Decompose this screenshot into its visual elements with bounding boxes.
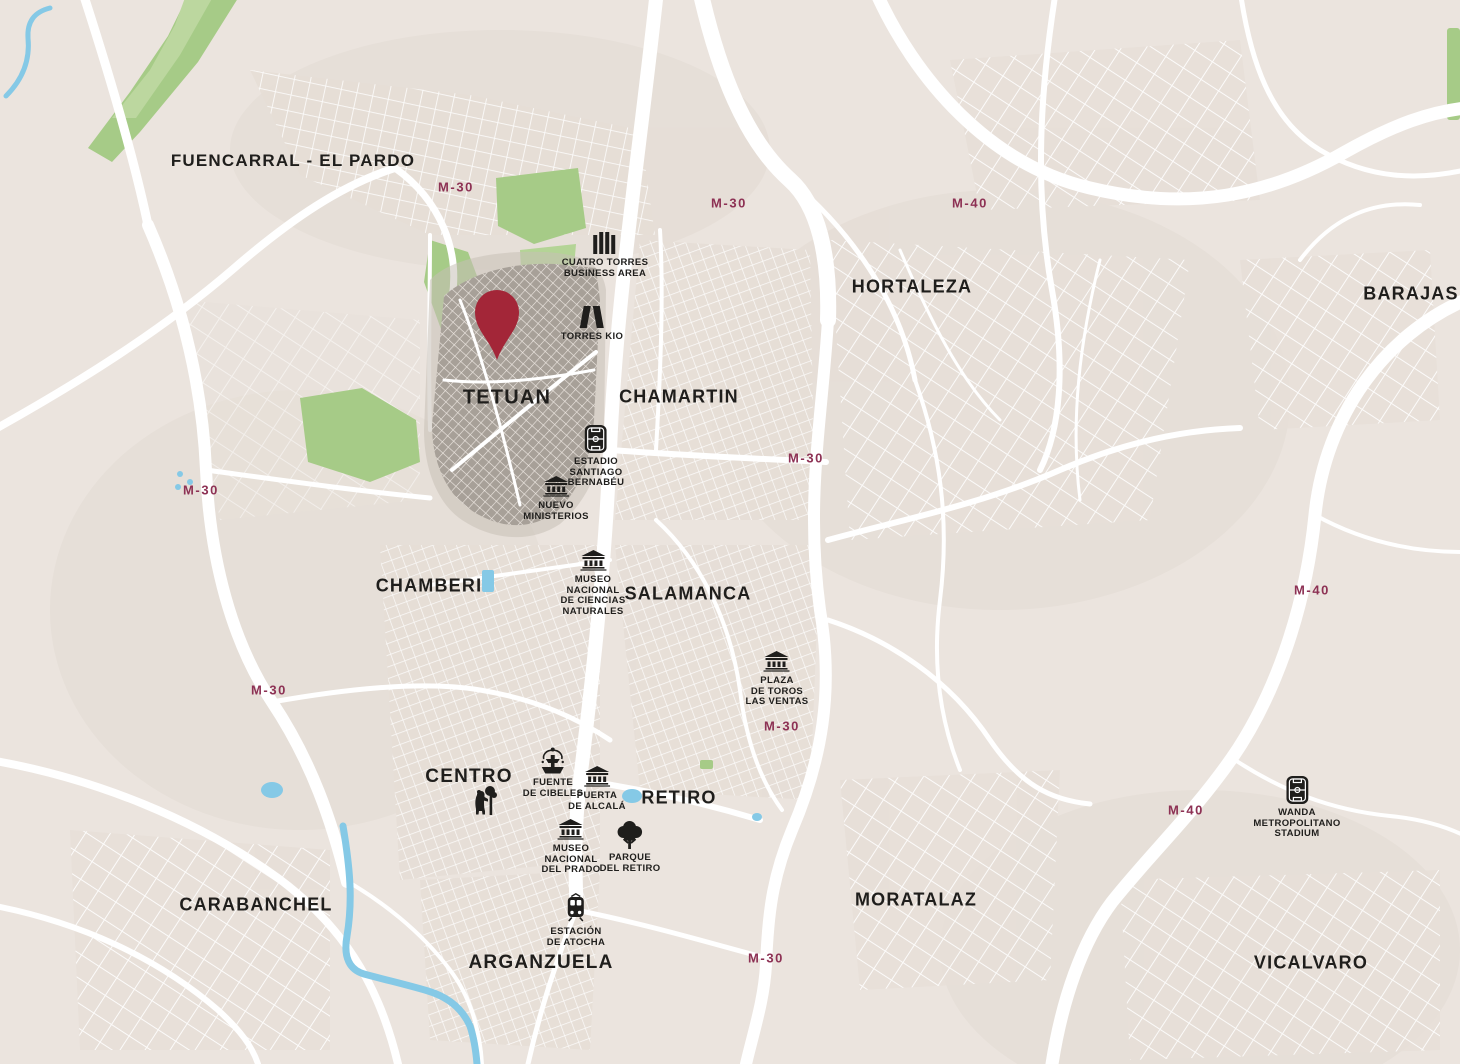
train-icon: [565, 893, 587, 923]
landmark-cuatro-torres-business-area: CUATRO TORRESBUSINESS AREA: [562, 232, 649, 279]
district-label-salamanca: SALAMANCA: [625, 584, 752, 605]
madrid-map-viewport[interactable]: FUENCARRAL - EL PARDOHORTALEZABARAJASTET…: [0, 0, 1460, 1064]
landmark-caption-line: DEL PRADO: [542, 865, 601, 876]
district-label-hortaleza: HORTALEZA: [852, 277, 972, 298]
district-label-barajas: BARAJAS: [1363, 284, 1458, 305]
bear-icon: [471, 785, 497, 815]
fountain-icon: [538, 747, 568, 774]
landmark-caption: TORRES KIO: [561, 332, 623, 343]
landmark-parque-del-retiro: PARQUEDEL RETIRO: [600, 821, 661, 874]
landmark-caption: PARQUEDEL RETIRO: [600, 853, 661, 874]
landmark-estacion-de-atocha: ESTACIÓNDE ATOCHA: [547, 893, 605, 948]
landmark-caption-line: LAS VENTAS: [746, 697, 809, 708]
road-label-m-40-6: M-40: [1294, 583, 1330, 598]
road-label-m-30-10: M-30: [748, 951, 784, 966]
landmark-caption-line: DE ALCALÁ: [568, 802, 626, 813]
road-label-m-30-7: M-30: [251, 683, 287, 698]
landmark-caption-line: MINISTERIOS: [523, 512, 589, 523]
district-label-retiro: RETIRO: [641, 788, 716, 809]
road-label-m-40-9: M-40: [1168, 803, 1204, 818]
landmark-museo-nacional-de-ciencias-naturales: MUSEONACIONALDE CIENCIASNATURALES: [560, 550, 625, 618]
district-label-arganzuela: ARGANZUELA: [469, 952, 614, 974]
stadium-icon: [1286, 776, 1308, 804]
landmark-oso-y-madrono: [471, 785, 497, 815]
road-label-m-30-4: M-30: [183, 483, 219, 498]
landmark-caption-line: DE ATOCHA: [547, 938, 605, 949]
landmark-caption: PUERTADE ALCALÁ: [568, 791, 626, 812]
kio-towers-icon: [578, 306, 606, 328]
four-towers-icon: [593, 232, 617, 254]
landmark-caption: PLAZADE TOROSLAS VENTAS: [746, 676, 809, 708]
museum-icon: [584, 766, 610, 787]
landmark-caption: WANDAMETROPOLITANOSTADIUM: [1253, 808, 1340, 840]
district-label-fuencarral-el-pardo: FUENCARRAL - EL PARDO: [171, 151, 415, 171]
district-label-vicalvaro: VICALVARO: [1254, 953, 1368, 974]
district-label-chamartin: CHAMARTIN: [619, 387, 739, 408]
museum-icon: [580, 550, 606, 571]
landmark-nuevo-ministerios: NUEVOMINISTERIOS: [523, 476, 589, 522]
district-label-carabanchel: CARABANCHEL: [179, 895, 332, 916]
museum-icon: [543, 476, 569, 497]
landmark-caption-line: BUSINESS AREA: [564, 269, 646, 280]
landmark-wanda-metropolitano-stadium: WANDAMETROPOLITANOSTADIUM: [1253, 776, 1340, 840]
museum-icon: [558, 819, 584, 840]
district-label-moratalaz: MORATALAZ: [855, 890, 977, 911]
landmark-caption: ESTACIÓNDE ATOCHA: [547, 927, 605, 948]
landmark-caption: NUEVOMINISTERIOS: [523, 501, 589, 522]
district-label-tetuan: TETUAN: [463, 387, 551, 410]
landmark-caption-line: DEL RETIRO: [600, 864, 661, 875]
landmark-caption-line: STADIUM: [1274, 829, 1319, 840]
road-label-m-30-5: M-30: [788, 451, 824, 466]
landmark-caption: MUSEONACIONALDEL PRADO: [542, 844, 601, 876]
landmark-caption-line: NATURALES: [562, 607, 623, 618]
road-label-m-30-1: M-30: [438, 180, 474, 195]
landmark-caption: CUATRO TORRESBUSINESS AREA: [562, 258, 649, 279]
tree-icon: [615, 821, 645, 849]
landmark-caption: MUSEONACIONALDE CIENCIASNATURALES: [560, 575, 625, 618]
road-label-m-30-8: M-30: [764, 719, 800, 734]
landmark-museo-nacional-del-prado: MUSEONACIONALDEL PRADO: [542, 819, 601, 876]
stadium-icon: [585, 425, 607, 453]
landmark-caption-line: TORRES KIO: [561, 332, 623, 343]
district-label-centro: CENTRO: [425, 766, 512, 788]
road-label-m-40-3: M-40: [952, 196, 988, 211]
landmark-torres-kio: TORRES KIO: [561, 306, 623, 343]
museum-icon: [764, 651, 790, 672]
landmark-plaza-de-toros-las-ventas: PLAZADE TOROSLAS VENTAS: [746, 651, 809, 708]
landmark-puerta-de-alcala: PUERTADE ALCALÁ: [568, 766, 626, 812]
district-label-chamberi: CHAMBERI: [376, 576, 483, 597]
road-label-m-30-2: M-30: [711, 196, 747, 211]
map-label-layer: FUENCARRAL - EL PARDOHORTALEZABARAJASTET…: [0, 0, 1460, 1064]
